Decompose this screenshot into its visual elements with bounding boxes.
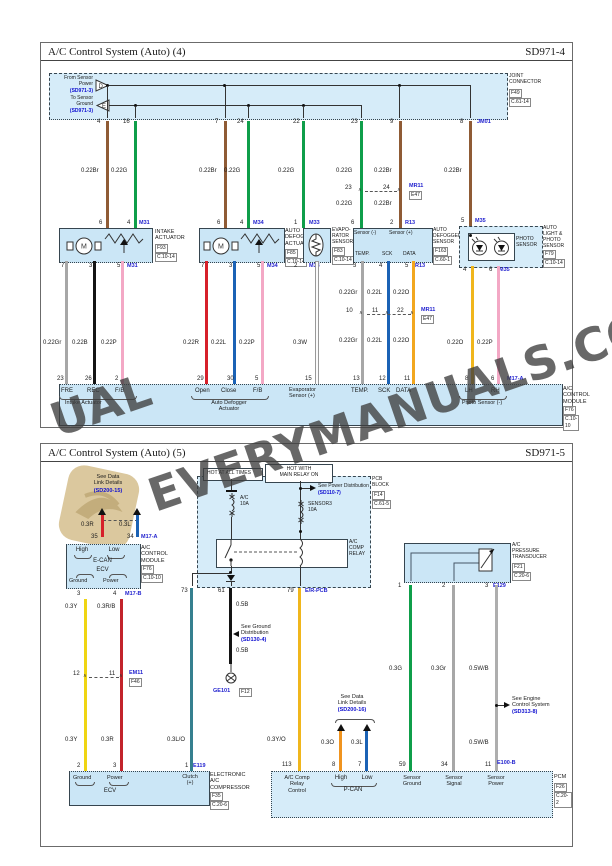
pin-number: 59 [399,762,406,768]
junction-dot [299,530,302,533]
module-pin-label: RH [491,388,500,395]
photo-sensor-label: PHOTO SENSOR [516,237,537,249]
wire-gray [361,261,364,384]
pin-number: 13 [353,376,360,382]
ground-distribution-note: See Ground Distribution [241,624,271,637]
ground-bus-line [109,105,362,106]
wire-label: 0.3R/B [97,604,115,611]
wire-orange [339,731,342,771]
wire-label: 0.5B [236,648,248,655]
pin-number: 4 [127,220,130,226]
photodiode-icon [471,237,488,257]
wire-label: 0.22Gr [339,290,357,297]
module-pin-label: LH [465,388,473,395]
pin-number: 12 [379,376,386,382]
wire-brown [399,121,402,228]
pin-number: 4 [463,267,466,273]
wire-label: 0.3Y [65,604,77,611]
junction-pin: 22 [397,308,404,314]
component-loc: C.10-14 [543,259,565,268]
component-loc: C.10-14 [332,256,354,265]
component-ref: F35 [210,792,223,801]
junction-pin: 12 [73,671,80,677]
pin-number: 8 [460,119,463,125]
wire-blue [233,261,236,384]
junction-chevron: ∧ [385,310,389,316]
relay-label: A/C COMP RELAY [349,540,365,558]
wire-black [93,261,96,384]
fuse-icon [227,493,237,517]
wire-label: 0.3G [389,666,402,673]
pin-number: 2 [294,263,297,269]
pin-number: 9 [390,119,393,125]
joint-connector-ref: F49 [509,89,522,98]
junction-pin: 23 [345,185,352,191]
wire-label: 0.22G [224,168,240,175]
pcb-block-loc: C.61-5 [372,500,391,509]
pin-number: 113 [282,762,292,768]
relay-out-line [231,582,232,586]
junction-chevron: ∧ [397,187,401,193]
data-link-ref: (SD200-15) [81,488,135,494]
component-ref: F76 [563,406,576,415]
module-pin-label: Power [103,578,119,584]
pin-number: 34 [441,762,448,768]
wire-label: 0.22Br [81,168,99,175]
module-pin-label: High [333,775,349,782]
wire-label: 0.3L/O [167,737,185,744]
wire-green [134,121,137,228]
pin-number: 15 [305,376,312,382]
bus-drop [399,86,400,118]
component-name: A/C PRESSURE TRANSDUCER [512,543,547,561]
junction-chevron: ∧ [359,310,363,316]
hot-label: HOT AT ALL TIMES [207,471,251,477]
thermistor-icon [306,230,328,260]
component-ref: F93 [155,244,168,253]
bus-drop [303,106,304,118]
pin-number: 5 [405,263,408,269]
pin-number: 61 [218,588,225,594]
module-pin-label: F/B [253,388,262,395]
bus-drop [248,106,249,118]
relay-out-line [192,573,193,586]
pin-number: 4 [379,263,382,269]
wire-label: 0.3O [321,740,334,747]
group-brace [335,719,375,723]
wire-label: 0.3Y [65,737,77,744]
wire-gray [452,585,455,771]
wire-blue [387,261,390,384]
module-pin-label: Sensor Ground [399,775,425,788]
wire-label: 0.22B [72,340,88,347]
connector-ref: E47 [421,315,434,324]
component-ref: F26 [554,783,567,792]
branch-line [302,488,310,489]
hot-with-main-relay-box: HOT WITH MAIN RELAY ON [265,464,333,483]
photodiode-icon [493,237,510,257]
module-pin-label: Ground [73,775,91,781]
module-pin-label: Sensor Power [483,775,509,788]
group-brace [109,782,129,786]
pin-number: 79 [287,588,294,594]
component-name: AUTO DEFOGGER SENSOR [433,228,461,246]
ecan-label: E-CAN [66,558,139,565]
module-pin-label: FRE [61,388,73,395]
wire-label: 0.3R [81,522,94,529]
wire-label: 0.22G [336,168,352,175]
wire-label: 0.22G [336,201,352,208]
hot-label: HOT WITH MAIN RELAY ON [266,467,332,479]
pin-number: 2 [115,376,118,382]
wire-red-black [120,599,123,771]
wire-brown [469,121,472,226]
component-loc: C.20-2 [554,792,572,808]
svg-text:M: M [81,244,87,251]
junction-dash [89,677,119,678]
pin-number: 16 [123,119,130,125]
component-ref: F21 [512,563,525,572]
module-pin-label: REC [87,388,100,395]
bus-drop [470,85,471,118]
wire-pink [121,261,124,384]
pin-number: 3 [113,763,116,769]
component-loc: C.10-14 [155,253,177,262]
wire-label: 0.3Gr [431,666,446,673]
temp-label: TEMP. [355,252,370,258]
wire-white [315,261,319,386]
power-bus-line [109,85,471,86]
pcb-block-box [197,476,371,588]
page-code: SD971-5 [525,447,565,459]
pin-number: 2 [390,220,393,226]
feed-line [231,479,232,490]
module-pin-label: Sensor Signal [441,775,467,788]
wire-green [247,121,250,228]
junction-chevron: ∧ [83,673,87,679]
junction-pin: 24 [383,185,390,191]
pin-number: 6 [489,267,492,273]
pin-number: 7 [61,263,64,269]
component-ref: F79 [543,250,556,259]
wire-pink [261,261,264,384]
pcb-block-label: PCB BLOCK [372,477,389,489]
joint-connector-label: JOINT CONNECTOR [509,74,541,86]
ecv-label: ECV [69,788,151,795]
component-name: A/C CONTROL MODULE [563,386,590,405]
wire-blue [365,731,368,771]
data-link-note: See Data Link Details [329,694,375,707]
module-pin-label: Evaporator Sensor (+) [289,387,316,400]
pin-number: 23 [57,376,64,382]
connector-name: EM11 [129,670,143,676]
connector-name: M17-A [507,376,524,382]
junction-chevron: ∧ [119,673,123,679]
connector-name: MR11 [421,307,435,313]
junction-dash [367,314,411,315]
component-loc: C.20-6 [210,801,229,810]
connector-name: M31 [139,220,150,226]
arrow-up-icon [363,724,371,731]
pin-number: 11 [485,762,491,768]
svg-text:D: D [99,84,104,90]
wire-label: 0.22R [183,340,199,347]
component-ref: F76 [141,565,154,574]
pin-number: 5 [257,263,260,269]
wire-blue [136,515,139,537]
page-title: A/C Control System (Auto) (5) [48,447,186,459]
arrow-up-icon [98,508,106,515]
page-code: SD971-4 [525,46,565,58]
module-pin-label: SCK [378,388,390,395]
relay-icon [216,539,346,566]
ground-ref: F12 [239,688,252,697]
arrow-up-icon [133,508,141,515]
connector-ref: E47 [409,191,422,200]
potentiometer-icon [103,231,147,257]
joint-connector-loc: C.61-14 [509,98,531,107]
module-pin-label: Close [221,388,236,395]
module-pin-label: DATA [396,388,411,395]
fuse-label: SENSOR3 10A [308,502,332,514]
pin-number: 7 [358,762,361,768]
twisted-pair-dash [103,520,138,521]
pin-number: 5 [255,376,258,382]
connector-name: E119 [193,763,206,769]
ground-distribution-ref: (SD130-4) [241,637,266,643]
power-distribution-ref: (SD110-7) [318,491,341,497]
ecv-label: ECV [66,567,139,574]
pin-number: 4 [240,220,243,226]
sck-label: SCK [382,252,392,258]
group-label: Photo Sensor (-) [449,400,515,406]
page-title: A/C Control System (Auto) (4) [48,46,186,58]
pin-number: 3 [485,583,488,589]
junction-chevron: ∧ [410,310,414,316]
junction-dash [365,191,397,192]
pin-number: 30 [227,376,234,382]
connector-name: M35 [499,267,510,273]
component-loc: C.10-10 [141,574,163,583]
wire-label: 0.22Br [199,168,217,175]
wire-label: 0.3L [119,522,131,529]
to-sensor-ground-label: To Sensor Ground [51,96,93,108]
component-name: ELECTRONIC A/C COMPRESSOR [210,772,250,791]
wire-label: 0.22L [211,340,226,347]
component-name: AUTO LIGHT & PHOTO SENSOR [543,226,564,250]
pin-number: 22 [293,119,300,125]
hot-at-all-times-box: HOT AT ALL TIMES [203,468,263,481]
wire-orange [412,261,415,384]
connector-name: M34 [253,220,264,226]
motor-icon: M [67,236,101,256]
module-pin-label: Low [359,775,375,782]
pin-number: 6 [217,220,220,226]
component-name: A/C CONTROL MODULE [141,545,168,564]
pin-number: 26 [85,376,92,382]
wire-label: 0.22P [101,340,117,347]
pin-number: 5 [117,263,120,269]
wire-label: 0.5W/B [469,666,489,673]
wire-brown [106,121,109,228]
pin-number: 1 [294,220,297,226]
pin-number: 8 [332,762,335,768]
component-name: INTAKE ACTUATOR [155,229,185,242]
to-sensor-ground-ref: (SD971-3) [51,109,93,115]
wire-pink [497,266,500,384]
connector-name: R13 [405,220,415,226]
wire-label: 0.22L [367,290,382,297]
connector-name: M17-B [125,591,142,597]
junction-pin: 11 [372,308,378,314]
wire-red [205,261,208,384]
module-pin-label: F/B [115,388,124,395]
wire-label: 0.3W [293,340,307,347]
wire-label: 0.3Y/O [267,737,286,744]
joint-connector-bus-box [49,73,508,120]
junction-dot [229,633,232,636]
fusible-link-bar [226,490,237,492]
panel-header: A/C Control System (Auto) (5) SD971-5 [41,444,572,462]
wire-label: 0.22G [111,168,127,175]
panel-header: A/C Control System (Auto) (4) SD971-4 [41,43,572,61]
junction-chevron: ∧ [358,187,362,193]
wire-yellow-orange [298,588,301,771]
wire-gray [65,261,68,384]
wire-label: 0.22G [278,168,294,175]
data-label: DATA [403,252,416,258]
bus-drop [135,106,136,118]
component-ref: F163 [433,247,448,256]
power-distribution-note: See Power Distribution [318,484,369,490]
arrow-right-icon [310,485,316,491]
pin-number: 2 [442,583,445,589]
diagram-panel-sd971-4: A/C Control System (Auto) (4) SD971-4 Fr… [40,42,573,428]
transducer-icon [404,543,509,581]
pin-number: 7 [215,119,218,125]
pin-number: 3 [353,263,356,269]
wire-label: 0.22O [393,338,409,345]
wire-label: 0.22O [447,340,463,347]
engine-control-note: See Engine Control System [512,696,550,709]
pin-number: 6 [491,376,494,382]
group-label: Auto Defogger Actuator [197,400,261,413]
module-pin-label: A/C Comp Relay Control [275,775,319,794]
manual-page: A/C Control System (Auto) (4) SD971-4 Fr… [0,0,612,866]
pin-number: 11 [404,376,410,382]
wire-amber [471,266,474,384]
pin-number: 2 [77,763,80,769]
relay-out-line [300,566,301,586]
pin-number: 4 [113,591,116,597]
component-loc: C.10-10 [563,415,579,431]
fuse-icon [296,500,306,524]
component-ref: F83 [332,247,345,256]
connector-name: E100-B [497,760,516,766]
wire-yellow [84,599,87,771]
ground-name: GE101 [213,688,230,694]
relay-out-line [192,573,231,574]
connector-ref: F46 [129,678,142,687]
wire-green [409,585,412,771]
bus-drop [225,86,226,118]
pin-number: 1 [185,763,188,769]
group-brace [75,782,95,786]
wire-green [360,121,363,228]
wire-white-black [495,585,498,771]
fuse-label: A/C 10A [240,496,249,508]
svg-text:E: E [102,104,106,110]
pin-number: 7 [201,263,204,269]
pin-number: 3 [89,263,92,269]
wire-label: 0.22P [477,340,493,347]
junction-pin: 11 [109,671,115,677]
component-loc: C.60-1 [433,256,452,265]
pin-number: 34 [127,534,134,540]
module-pin-label: High [71,547,93,554]
wire-label: 0.22Gr [339,338,357,345]
bus-drop [361,105,362,118]
junction-pin: 10 [346,308,353,314]
wire-label: 0.3R [101,737,114,744]
svg-text:M: M [218,244,224,251]
wire-label: 0.22P [239,340,255,347]
connector-name: M31 [127,263,138,269]
connector-name: JM01 [477,119,491,125]
wire-label: 0.22Br [374,168,392,175]
pin-number: 6 [351,220,354,226]
wire-label: 0.22Br [374,201,392,208]
module-pin-label: Power [107,775,123,781]
module-pin-label: Open [195,388,210,395]
connector-name: E/R-PCB [305,588,328,594]
wire-label: 0.22L [367,338,382,345]
component-ref: F85 [285,249,298,258]
data-link-note: See Data Link Details [81,474,135,487]
arrow-right-icon [504,702,510,708]
pcb-block-ref: F14 [372,491,385,500]
wire-red [101,515,104,537]
group-label: Intake Actuator [65,400,102,406]
wire-label: 0.5W/B [469,740,489,747]
ground-icon [223,664,239,686]
wire-label: 0.22O [393,290,409,297]
clutch-label: Clutch (+) [179,774,201,787]
pin-number: 23 [351,119,358,125]
from-sensor-power-label: From Sensor Power [51,76,93,88]
pin-number: 3 [77,591,80,597]
feed-line [231,517,232,539]
connector-name: M35 [475,218,486,224]
arrow-left-icon [233,631,239,637]
pin-number: 1 [398,583,401,589]
module-pin-label: TEMP. [351,388,369,395]
wire-label: 0.3L [351,740,363,747]
engine-control-ref: (SD313-8) [512,709,537,715]
pin-number: 29 [197,376,204,382]
component-name: EVAPO- RATOR SENSOR [332,228,353,246]
connector-name: M34 [267,263,278,269]
pin-number: 35 [91,534,98,540]
component-loc: C.20-6 [512,572,531,581]
arrow-up-icon [337,724,345,731]
pin-number: 4 [97,119,100,125]
wire-label: 0.5B [236,602,248,609]
wire-teal [190,588,193,771]
component-name: PCM [554,774,566,780]
bus-drop [107,86,108,118]
module-pin-label: Ground [69,578,87,584]
